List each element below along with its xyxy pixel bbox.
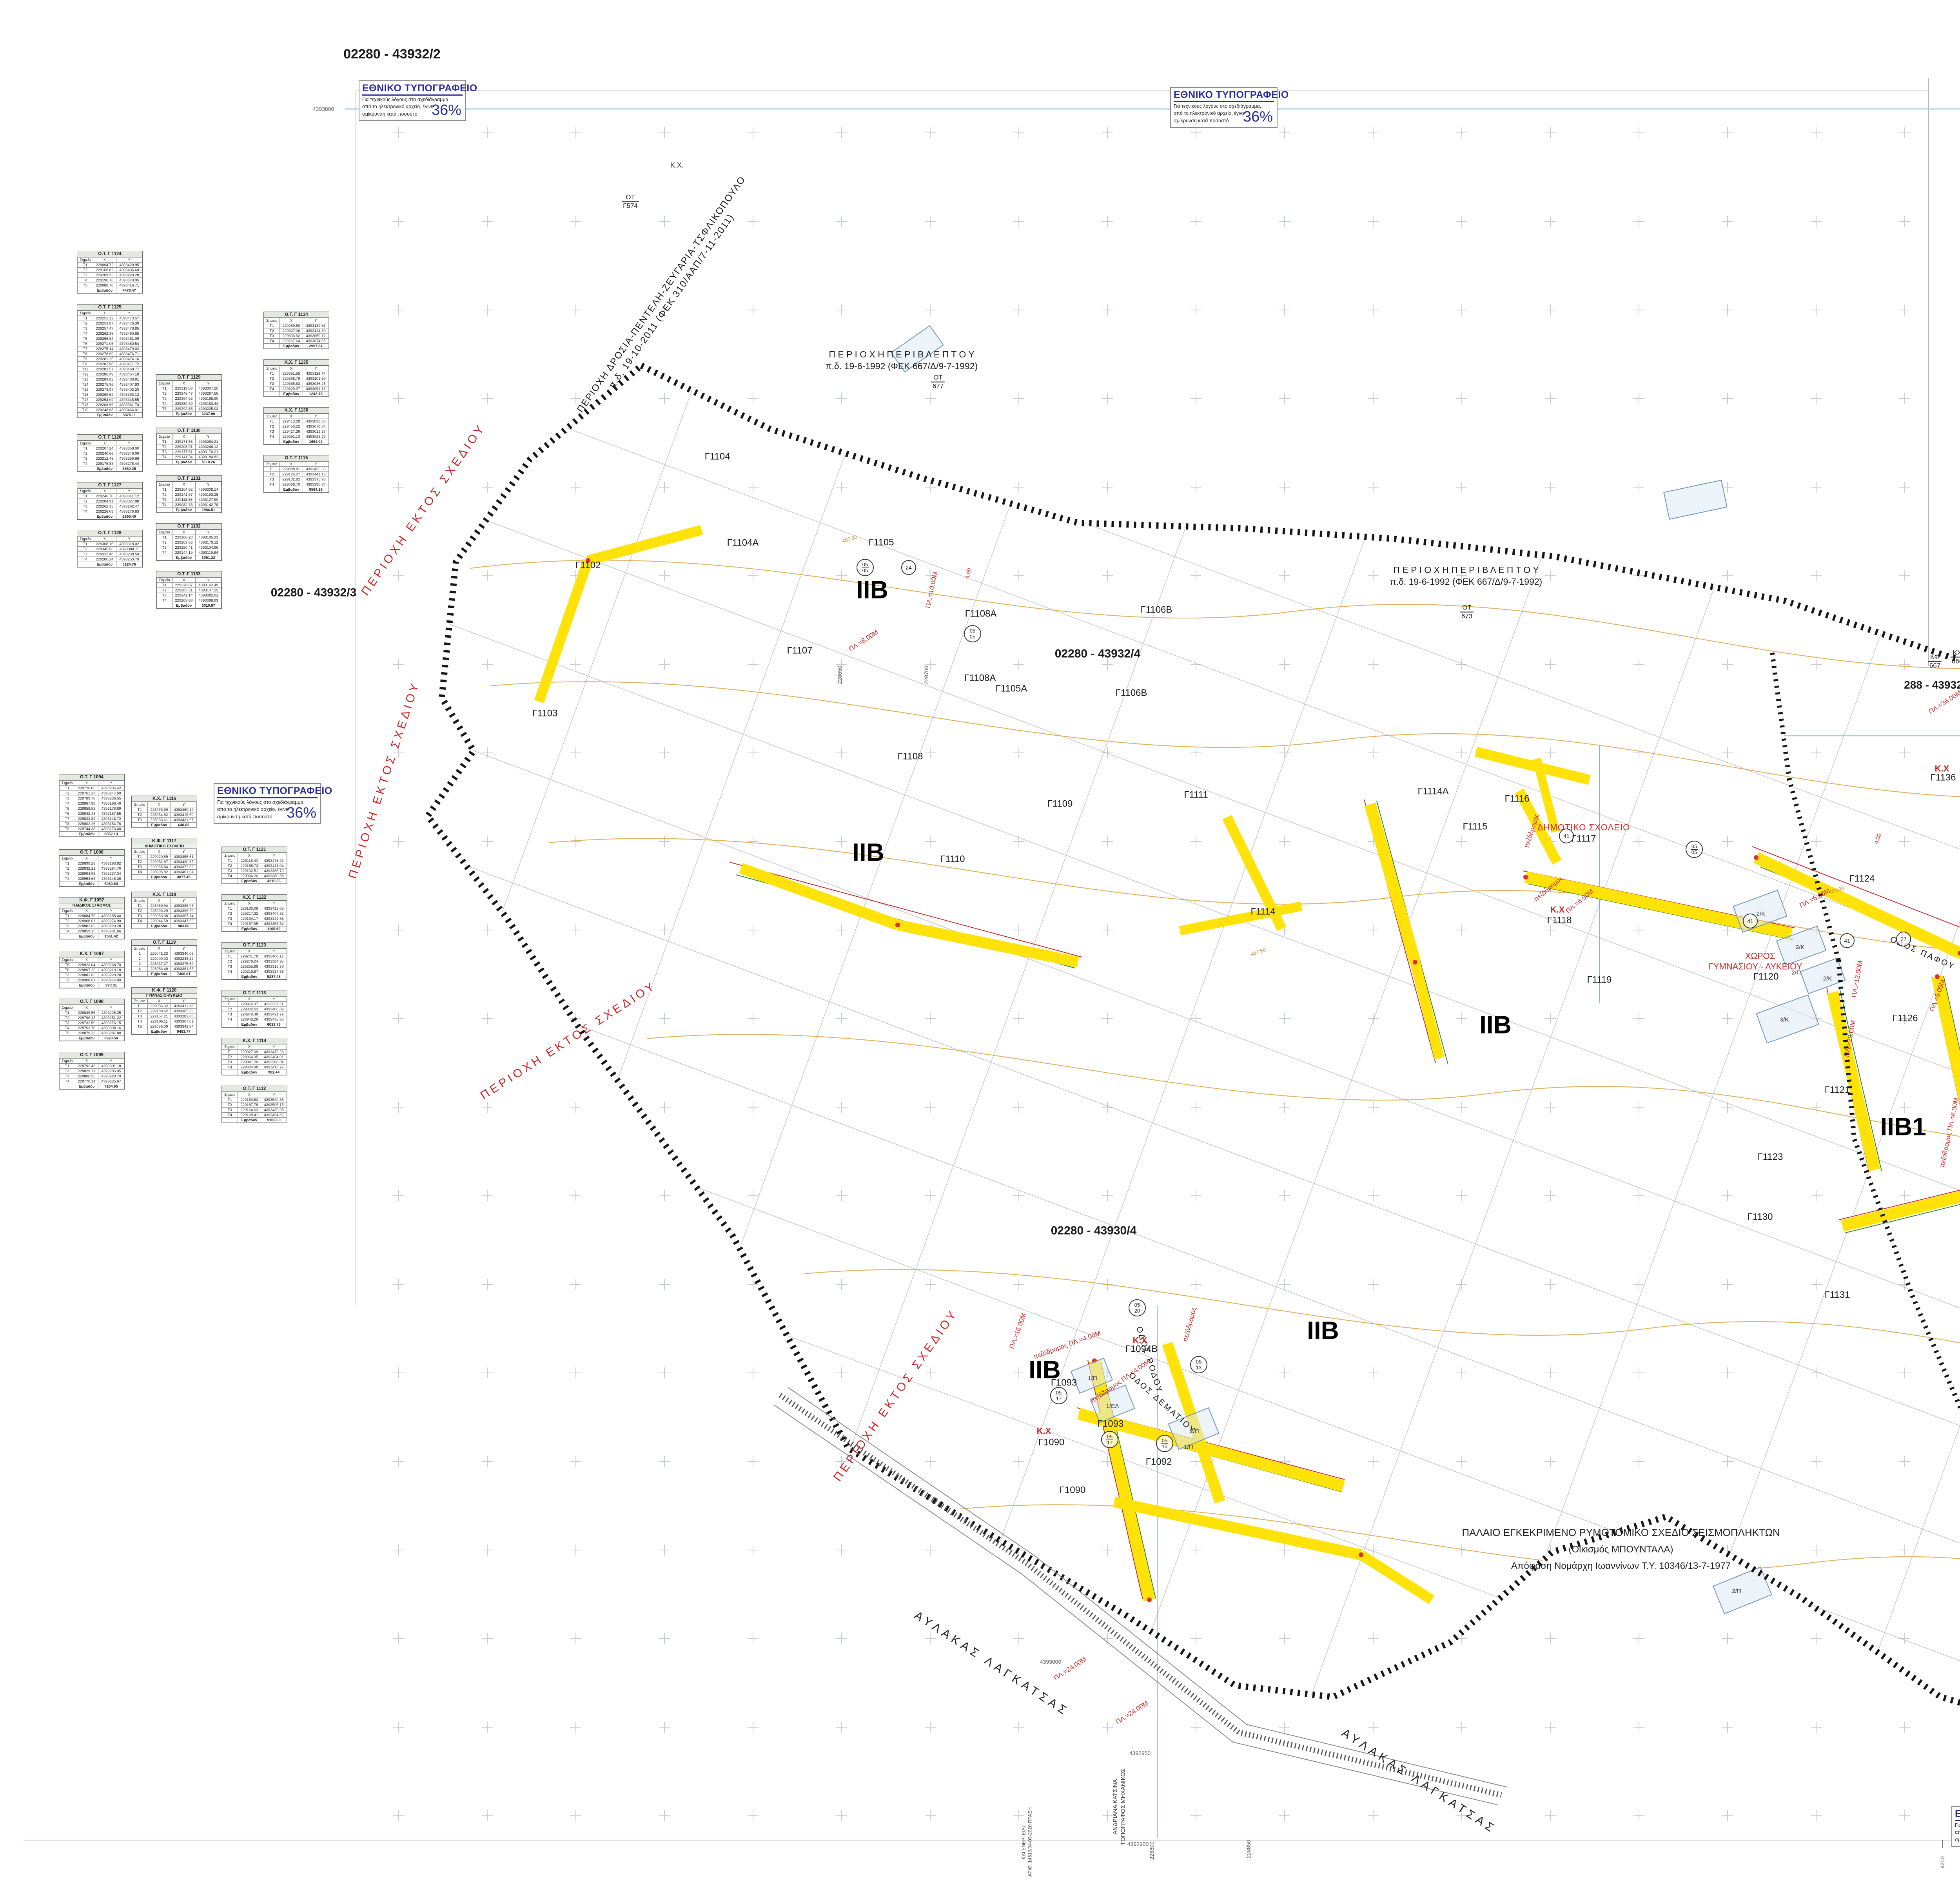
coordinate-table: Ο.Τ. Γ 1119ΣημείοXY1229041.234393340.062… (131, 939, 197, 977)
coefficient-badge: 0515 (1156, 1435, 1173, 1452)
coordinate-table: Κ.Χ. Γ 1122ΣημείοXYΤ1229180.064393423.05… (221, 894, 287, 932)
coordinate-table: Κ.Φ. Γ 1117ΔΗΜΟΤΙΚΟ ΣΧΟΛΕΙΟΣημείοXYΤ1229… (131, 838, 197, 880)
coordinate-table: Κ.Χ. Γ 1118ΣημείοXYΤ1228989.944393388.98… (131, 892, 197, 929)
coordinate-table: Κ.Φ. Γ 1120ΓΥΜΝΑΣΙΟ-ΛΥΚΕΙΟΣημείοXYΤ12290… (131, 987, 197, 1035)
coordinate-table: Ο.Τ. Γ 1134ΣημείοXYΤ1229289.804393139.61… (263, 312, 329, 349)
coordinate-table: Κ.Χ. Γ 1116ΣημείοXYΤ1228976.694393460.19… (131, 796, 197, 828)
coordinate-table: Ο.Τ. Γ 1133ΣημείοXYΤ1229228.074393162.49… (156, 571, 222, 609)
plan-title-block: ΠΑΛΑΙΟ ΕΓΚΕΚΡΙΜΕΝΟ ΡΥΜΟΤΟΜΙΚΟ ΣΧΕΔΙΟ ΣΕΙ… (1462, 1527, 1780, 1572)
coordinate-table: Κ.Φ. Γ 1097ΠΑΙΔΙΚΟΣ ΣΤΑΘΜΟΣΣημείοXYΤ1228… (59, 897, 125, 939)
parcel-number-badge: 24 (901, 560, 916, 575)
ot-fraction-label: ΚΧ666 (1951, 649, 1960, 666)
coefficient-badge: 0505 (1686, 841, 1703, 858)
coordinate-table: Κ.Χ. Γ 1136ΣημείοXYΤ1229413.284393093.86… (263, 407, 329, 445)
parcel-number-badge: 41 (1743, 914, 1758, 928)
coordinate-table: Ο.Τ. Γ 1123ΣημείοXYΤ1229241.784393400.17… (221, 942, 287, 980)
printing-office-stamp: ΕΘΝΙΚΟ ΤΥΠΟΓΡΑΦΕΙΟΓια τεχνικούς λόγους σ… (1170, 87, 1278, 128)
coordinate-table: Κ.Χ. Γ 1135ΣημείοXYΤ1229351.554393116.74… (263, 359, 329, 397)
ot-fraction-label: ΚΦ667 (1928, 653, 1942, 670)
printing-office-stamp: ΕΘΝΙΚΟ ΤΥΠΟΓΡΑΦΕΙΟΓια τεχνικούς λόγους σ… (1951, 1806, 1960, 1847)
parcel-number-badge: 27 (1896, 932, 1911, 946)
coefficient-badge: 0520 (1129, 1299, 1146, 1316)
parcel-number-badge: 41 (1840, 933, 1855, 948)
coordinate-table: Ο.Τ. Γ 1131ΣημείοXYΤ1229104.524393208.14… (156, 475, 222, 513)
ot-fraction-label: ΟΤ673 (1460, 604, 1474, 621)
coordinate-table: Ο.Τ. Γ 1096ΣημείοXYΤ1228899.294393193.82… (59, 849, 125, 887)
coordinate-table: Ο.Τ. Γ 1121ΣημείοXYΤ1229118.404393445.92… (221, 847, 287, 884)
coordinate-table: Ο.Τ. Γ 1126ΣημείοXYΤ1229207.244393358.00… (77, 434, 143, 472)
printing-office-stamp: ΕΘΝΙΚΟ ΤΥΠΟΓΡΑΦΕΙΟΓια τεχνικούς λόγους σ… (359, 80, 466, 121)
coordinate-table: Ο.Τ. Γ 1113ΣημείοXYΤ1228965.374393502.11… (221, 990, 287, 1028)
ot-fraction-label: ΟΤΓ574 (622, 194, 639, 210)
coordinate-table: Ο.Τ. Γ 1094ΣημείοXYΤ1228726.064393236.42… (59, 774, 125, 837)
coordinate-table: Ο.Τ. Γ 1124ΣημείοXYΤ1229094.724393429.95… (77, 251, 143, 294)
coordinate-table: Ο.Τ. Γ 1132ΣημείοXYΤ1229166.284393185.33… (156, 523, 222, 561)
map-canvas (0, 0, 1960, 1902)
coordinate-table: Κ.Χ. Γ 1097ΣημείοXYΤ5228923.044393268.70… (59, 951, 125, 988)
coefficient-badge: 0517 (1101, 1431, 1118, 1448)
coordinate-table: Ο.Τ. Γ 1128ΣημείοXYΤ1229308.154393318.02… (77, 530, 143, 568)
coordinate-table: Ο.Τ. Γ 1129ΣημείοXYΤ1229319.064393307.25… (156, 374, 222, 417)
ot-fraction-label: ΟΤ677 (931, 374, 945, 391)
coordinate-table: Ο.Τ. Γ 1112ΣημείοXYΤ1229150.524393520.38… (221, 1086, 287, 1123)
printing-office-stamp: ΕΘΝΙΚΟ ΤΥΠΟΓΡΑΦΕΙΟΓια τεχνικούς λόγους σ… (214, 783, 321, 824)
coefficient-badge: 0505 (964, 625, 981, 642)
coordinate-table: Κ.Χ. Γ 1114ΣημείοXYΤ1229027.094393479.23… (221, 1038, 287, 1075)
coefficient-badge: 0505 (857, 559, 874, 576)
coefficient-badge: 0513 (1190, 1356, 1207, 1373)
coordinate-table: Ο.Τ. Γ 1115ΣημείοXYΤ1229088.814393456.36… (263, 455, 329, 493)
coordinate-table: Ο.Τ. Γ 1098ΣημείοXYΤ1228849.564393225.25… (59, 999, 125, 1041)
parcel-number-badge: 41 (1559, 829, 1574, 843)
coefficient-badge: 0517 (1050, 1387, 1067, 1404)
cadastral-map-sheet: 02280 - 43932/202280 - 43932/302280 - 43… (0, 0, 1960, 1902)
coordinate-table: Ο.Τ. Γ 1130ΣημείοXYΤ1229171.554393264.21… (156, 428, 222, 465)
coordinate-table: Ο.Τ. Γ 1127ΣημείοXYΤ1229246.704393341.12… (77, 482, 143, 520)
coordinate-table: Ο.Τ. Γ 1125ΣημείοXYΤ1229251.224393473.57… (77, 304, 143, 418)
coordinate-table: Ο.Τ. Γ 1099ΣημείοXYΤ1228792.454393301.18… (59, 1052, 125, 1090)
